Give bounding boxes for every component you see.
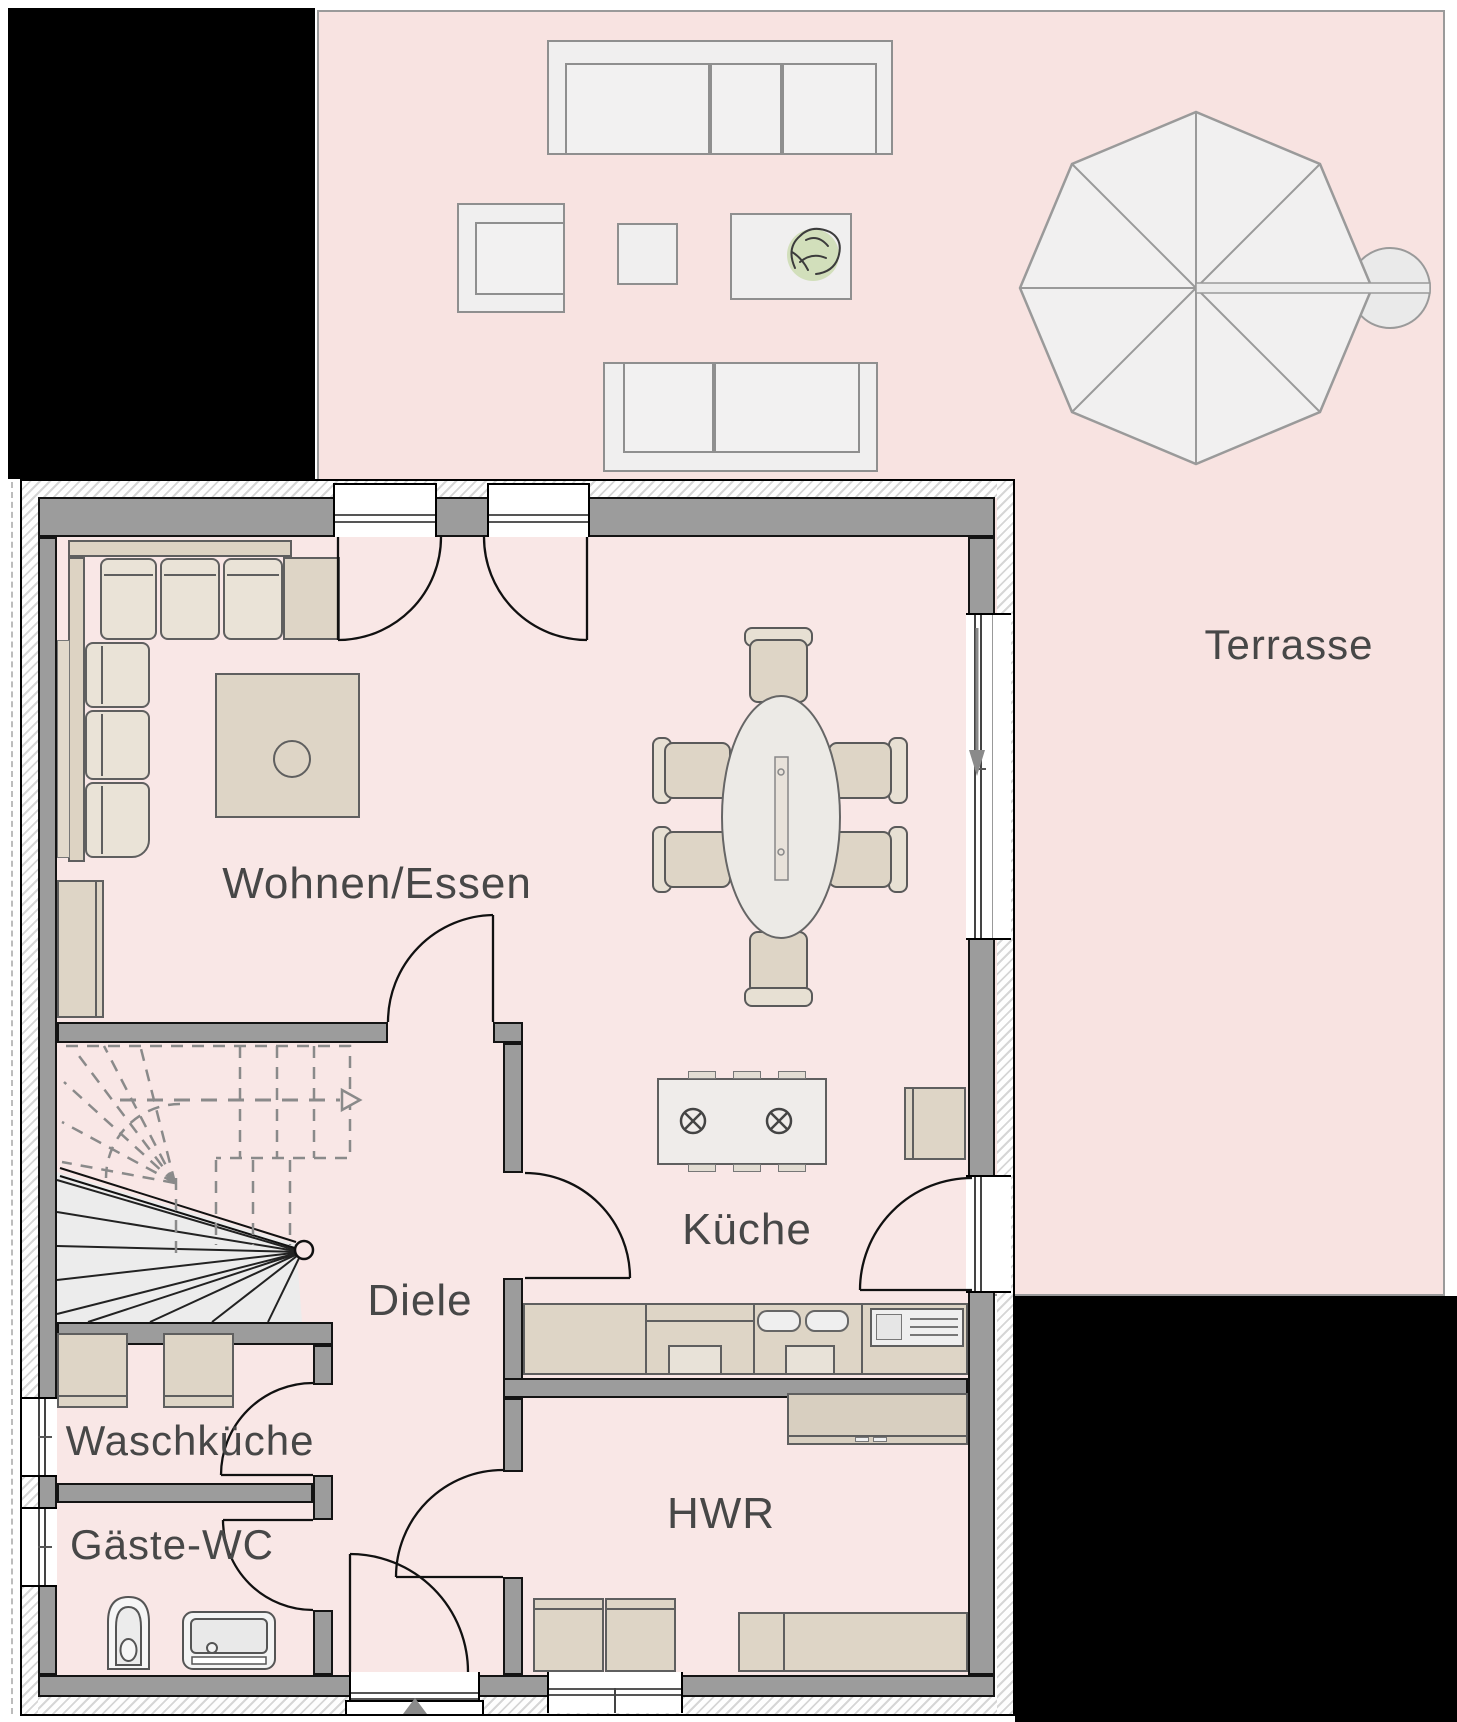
garden-sofa-seat (782, 63, 877, 155)
wall-hall-laundry-2 (313, 1475, 333, 1520)
island-handle (688, 1071, 716, 1079)
sofa-cushion (85, 710, 150, 780)
island-handle (733, 1164, 761, 1172)
terrace-door-opening-left (333, 483, 437, 537)
garden-sofa-small-seat (623, 362, 714, 453)
laundry-washer (57, 1333, 128, 1408)
counter-appliance (870, 1308, 964, 1347)
kitchen-counter (523, 1303, 968, 1375)
coffee-table (215, 673, 360, 818)
hwr-bench (738, 1612, 968, 1672)
window-wc (22, 1507, 57, 1587)
room-label-waschkueche: Waschküche (66, 1417, 315, 1465)
terrace-door-opening-left-2 (487, 483, 590, 537)
garden-armchair-seat (475, 222, 565, 295)
kitchen-island (657, 1078, 827, 1165)
laundry-dryer (163, 1333, 234, 1408)
room-label-hwr: HWR (667, 1489, 775, 1539)
wall-living-hall (57, 1022, 388, 1043)
terrace-door-opening-kitchen (966, 1175, 1011, 1293)
property-line (11, 482, 13, 1714)
sofa-cushion (160, 558, 220, 640)
garden-sofa-small-seat (714, 362, 860, 453)
sofa-cushion (100, 558, 157, 640)
hwr-shelf (787, 1393, 968, 1445)
wall-hall-kitchen-1 (503, 1043, 523, 1173)
island-handle (778, 1071, 806, 1079)
wall-laundry-wc (57, 1483, 313, 1503)
room-label-wohnen-essen: Wohnen/Essen (222, 859, 532, 909)
garden-sofa-seat (710, 63, 782, 155)
wall-hall-hwr-2 (503, 1577, 523, 1675)
wall-hall-laundry-1 (313, 1345, 333, 1385)
radiator (57, 640, 70, 858)
garden-plant-table (730, 213, 852, 300)
floor-plan: Terrasse Wohnen/Essen Küche Diele Waschk… (0, 0, 1457, 1722)
island-handle (688, 1164, 716, 1172)
mask-bottom-right (1015, 1296, 1457, 1722)
exterior-plaster-bottom (22, 1697, 1013, 1714)
sideboard (57, 880, 104, 1018)
island-handle (778, 1164, 806, 1172)
sofa-cushion (223, 558, 283, 640)
sofa-back-left (68, 557, 85, 862)
sofa-cushion (85, 642, 150, 708)
room-label-terrasse: Terrasse (1204, 621, 1373, 669)
mask-top-left (8, 8, 315, 479)
hwr-washer (533, 1598, 604, 1672)
window-hwr (547, 1672, 683, 1713)
garden-sofa-seat (565, 63, 710, 155)
exterior-wall-left (38, 537, 57, 1675)
hwr-dryer (605, 1598, 676, 1672)
sliding-window-right (966, 613, 1011, 940)
counter-drawer (668, 1345, 722, 1373)
counter-drawer (785, 1345, 835, 1373)
wall-hall-wc (313, 1610, 333, 1675)
room-label-gaeste-wc: Gäste-WC (70, 1521, 274, 1569)
room-label-diele: Diele (367, 1276, 472, 1326)
room-label-kueche: Küche (682, 1205, 812, 1255)
entrance-porch (345, 1700, 484, 1716)
exterior-wall-bottom (38, 1675, 995, 1697)
window-laundry (22, 1397, 57, 1477)
wall-hall-hwr-1 (503, 1398, 523, 1472)
wall-living-hall-corner (493, 1022, 523, 1043)
island-handle (733, 1071, 761, 1079)
sofa-corner-seat (283, 557, 340, 640)
sofa-back-top (68, 540, 292, 557)
sofa-cushion (85, 782, 150, 858)
fridge (904, 1087, 966, 1160)
garden-side-table (617, 223, 678, 285)
